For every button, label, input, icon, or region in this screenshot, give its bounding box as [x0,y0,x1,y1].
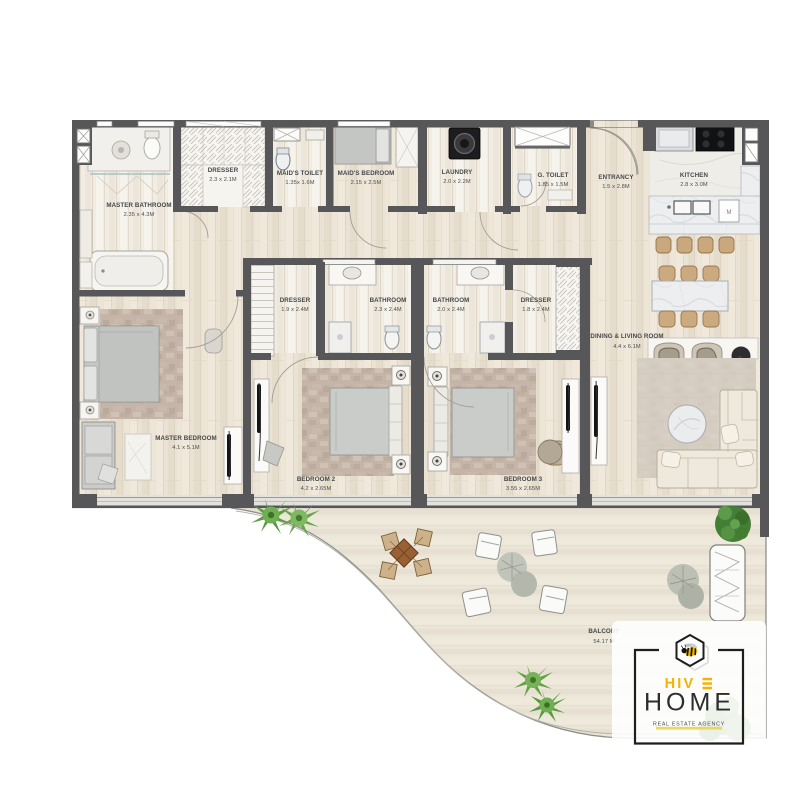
svg-text:HOME: HOME [644,689,735,717]
svg-text:LAUNDRY: LAUNDRY [442,169,473,176]
svg-text:2.3 x 2.1M: 2.3 x 2.1M [209,177,237,183]
svg-text:M: M [727,210,732,216]
svg-text:DRESSER: DRESSER [208,167,239,174]
svg-text:1.35x 1.6M: 1.35x 1.6M [285,180,314,186]
svg-text:BATHROOM: BATHROOM [370,297,407,304]
svg-text:4.1 x 5.1M: 4.1 x 5.1M [172,445,200,451]
svg-text:1.85 x 1.5M: 1.85 x 1.5M [538,182,569,188]
svg-text:1.5 x 2.8M: 1.5 x 2.8M [602,184,630,190]
svg-text:4.4 x 6.1M: 4.4 x 6.1M [613,344,641,350]
svg-text:DRESSER: DRESSER [521,297,552,304]
svg-text:KITCHEN: KITCHEN [680,172,709,179]
svg-text:54.17 M: 54.17 M [593,639,614,645]
svg-text:MAID'S TOILET: MAID'S TOILET [277,170,323,177]
svg-text:2.0 x 2.2M: 2.0 x 2.2M [443,179,471,185]
svg-text:BEDROOM 2: BEDROOM 2 [297,476,336,483]
svg-text:2.3 x 2.4M: 2.3 x 2.4M [374,307,402,313]
svg-text:MAID'S BEDROOM: MAID'S BEDROOM [338,170,395,177]
svg-text:ENTRANCY: ENTRANCY [598,174,634,181]
svg-text:2.15 x 2.5M: 2.15 x 2.5M [351,180,382,186]
svg-text:BATHROOM: BATHROOM [433,297,470,304]
svg-text:G. TOILET: G. TOILET [537,172,568,179]
svg-text:3.55 x 2.65M: 3.55 x 2.65M [506,486,540,492]
svg-text:REAL ESTATE AGENCY: REAL ESTATE AGENCY [653,722,725,728]
svg-text:4.2 x 2.65M: 4.2 x 2.65M [301,486,332,492]
svg-text:DRESSER: DRESSER [280,297,311,304]
svg-text:DINING & LIVING ROOM: DINING & LIVING ROOM [590,333,663,340]
svg-text:2.35 x 4.3M: 2.35 x 4.3M [124,212,155,218]
svg-text:MASTER BATHROOM: MASTER BATHROOM [106,202,171,209]
svg-text:2.8 x 3.0M: 2.8 x 3.0M [680,182,708,188]
svg-text:1.8 x 2.4M: 1.8 x 2.4M [522,307,550,313]
svg-text:MASTER BEDROOM: MASTER BEDROOM [155,435,217,442]
svg-text:BEDROOM 3: BEDROOM 3 [504,476,543,483]
svg-text:2.0 x 2.4M: 2.0 x 2.4M [437,307,465,313]
svg-text:1.9 x 2.4M: 1.9 x 2.4M [281,307,309,313]
